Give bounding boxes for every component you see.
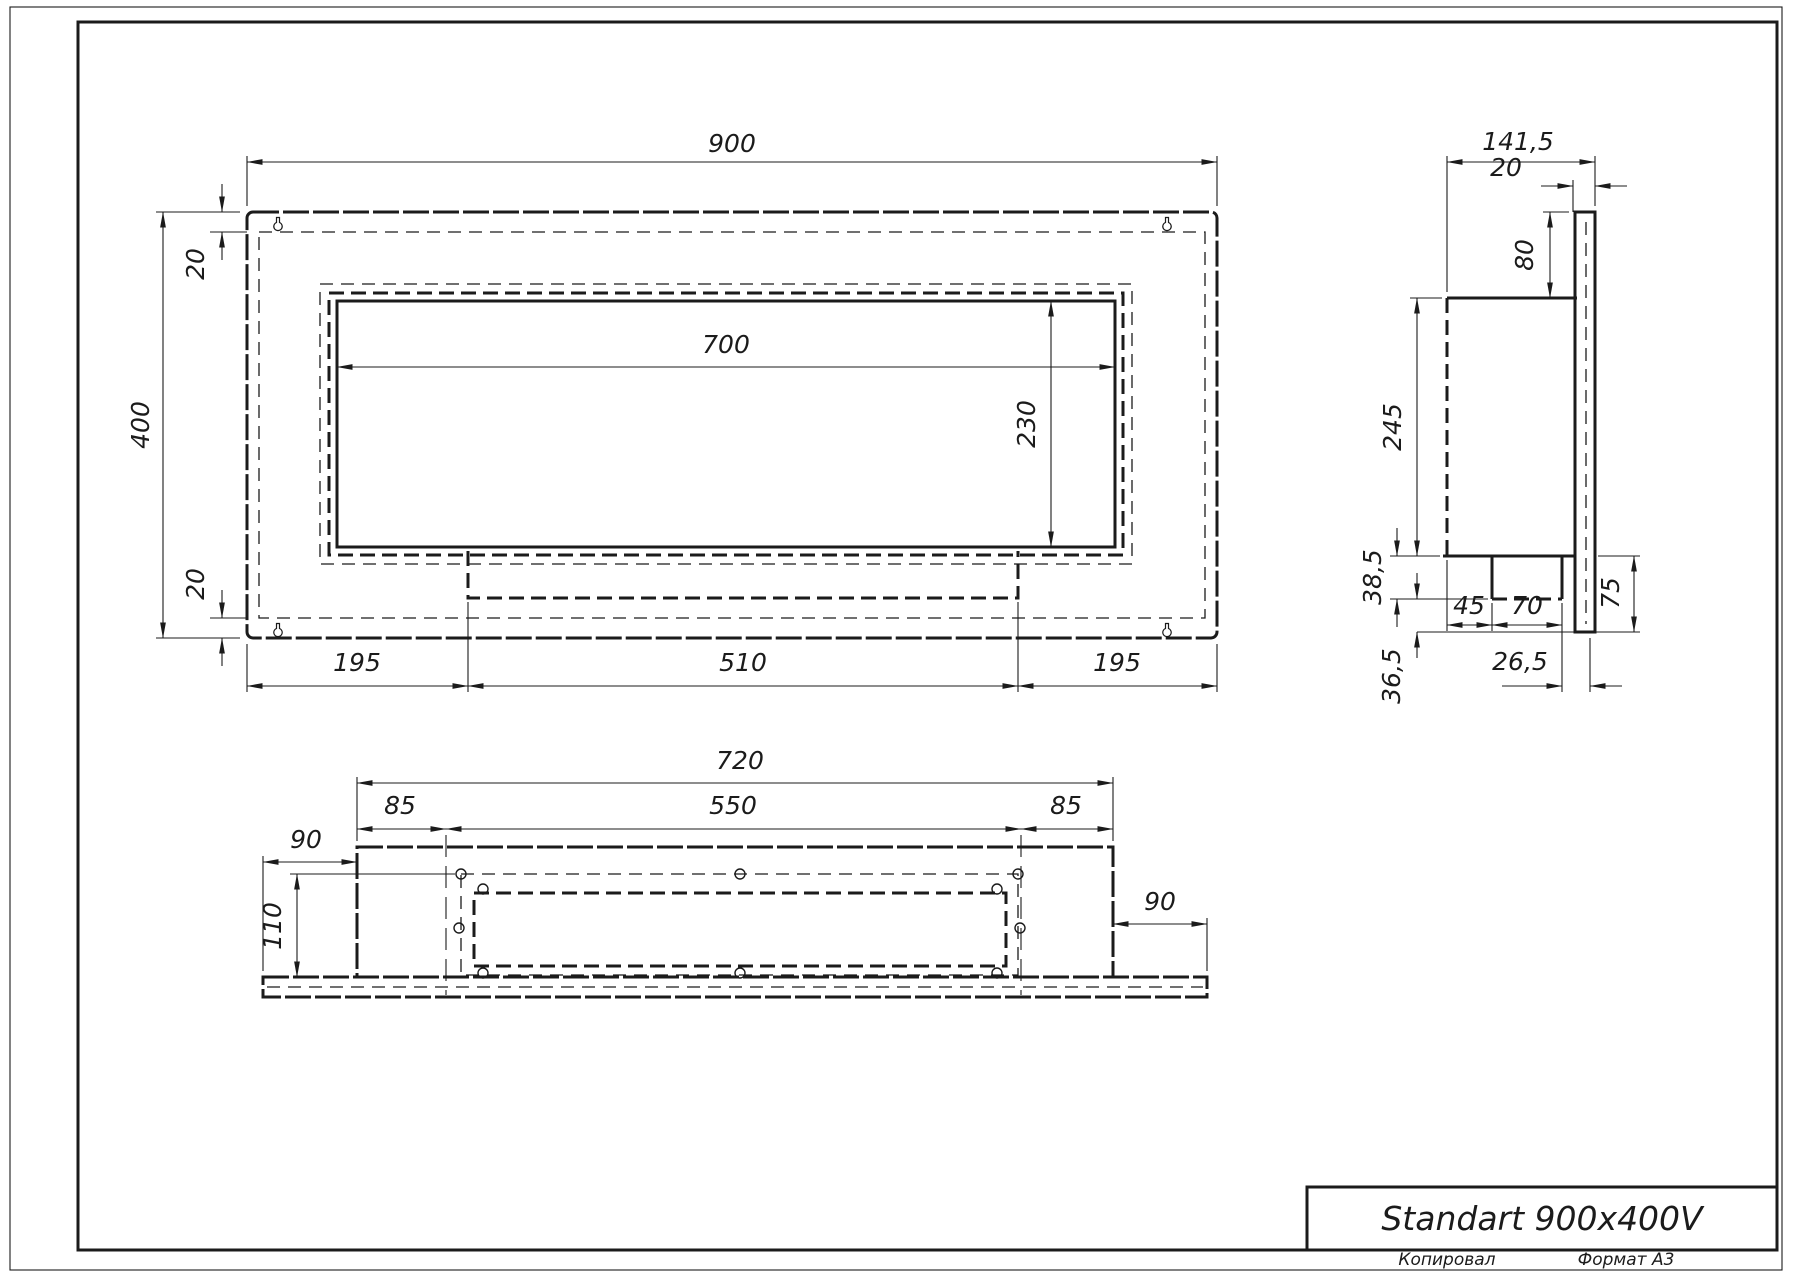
bottom-view: 720 85 550 85 90 90 110 <box>258 746 1207 997</box>
dim-front-opening-height: 230 <box>1012 400 1041 448</box>
bottom-flange-hidden-outer <box>461 874 1018 975</box>
dim-side-total-depth: 141,5 <box>1482 127 1554 156</box>
keyhole-slot-icon <box>1163 218 1171 231</box>
drawing-title: Standart 900x400V <box>1381 1199 1705 1238</box>
dim-side-burner-drop: 38,5 <box>1358 549 1387 605</box>
dim-front-width: 900 <box>708 129 756 158</box>
front-view: 900 400 20 20 700 230 195 510 195 <box>126 129 1217 692</box>
dim-side-plate-above: 80 <box>1510 239 1539 271</box>
dim-side-body-height: 245 <box>1378 403 1407 451</box>
dim-side-burner-depth: 70 <box>1511 591 1543 620</box>
front-opening-hidden-outer <box>320 284 1132 564</box>
dim-bottom-body-width: 720 <box>716 746 764 775</box>
dim-front-burner-width: 510 <box>719 648 767 677</box>
dim-front-bottom-inset: 20 <box>181 568 210 600</box>
dim-front-top-inset: 20 <box>181 248 210 280</box>
dim-front-bottom-right: 195 <box>1093 648 1141 677</box>
bottom-screw-holes <box>454 869 1025 978</box>
drawing-frame <box>78 22 1777 1250</box>
dim-bottom-left-inset: 85 <box>384 791 416 820</box>
copied-by-label: Копировал <box>1398 1250 1495 1270</box>
side-back-plate <box>1575 212 1595 632</box>
front-inner-hidden-line <box>259 232 1205 618</box>
dim-front-opening-width: 700 <box>702 330 750 359</box>
dim-side-plate-thickness: 20 <box>1490 153 1522 182</box>
dim-bottom-plate-right: 90 <box>1144 887 1176 916</box>
keyhole-slot-icon <box>274 624 282 637</box>
bottom-burner-hidden <box>474 893 1006 966</box>
dim-bottom-burner-width: 550 <box>709 791 757 820</box>
keyhole-slot-icon <box>1163 624 1171 637</box>
drawing-sheet: 900 400 20 20 700 230 195 510 195 <box>0 0 1800 1273</box>
dim-bottom-plate-left: 90 <box>290 825 322 854</box>
dim-side-front-to-burner: 45 <box>1453 591 1485 620</box>
dim-side-burner-to-back: 26,5 <box>1492 647 1548 676</box>
dim-side-plate-below: 75 <box>1596 577 1625 609</box>
front-burner-hidden <box>468 551 1018 598</box>
dim-front-height: 400 <box>126 401 155 449</box>
dim-bottom-body-depth: 110 <box>258 902 287 950</box>
bottom-body-outline <box>357 847 1113 977</box>
front-outer-outline <box>247 212 1217 638</box>
dim-side-below-burner: 36,5 <box>1377 648 1406 704</box>
dim-bottom-right-inset: 85 <box>1050 791 1082 820</box>
format-label: Формат А3 <box>1578 1250 1675 1270</box>
title-block: Standart 900x400V Копировал Формат А3 <box>1307 1187 1777 1270</box>
side-view: 141,5 20 80 245 38,5 36,5 45 70 75 26,5 <box>1358 127 1640 704</box>
dim-front-bottom-left: 195 <box>333 648 381 677</box>
keyhole-slot-icon <box>274 218 282 231</box>
